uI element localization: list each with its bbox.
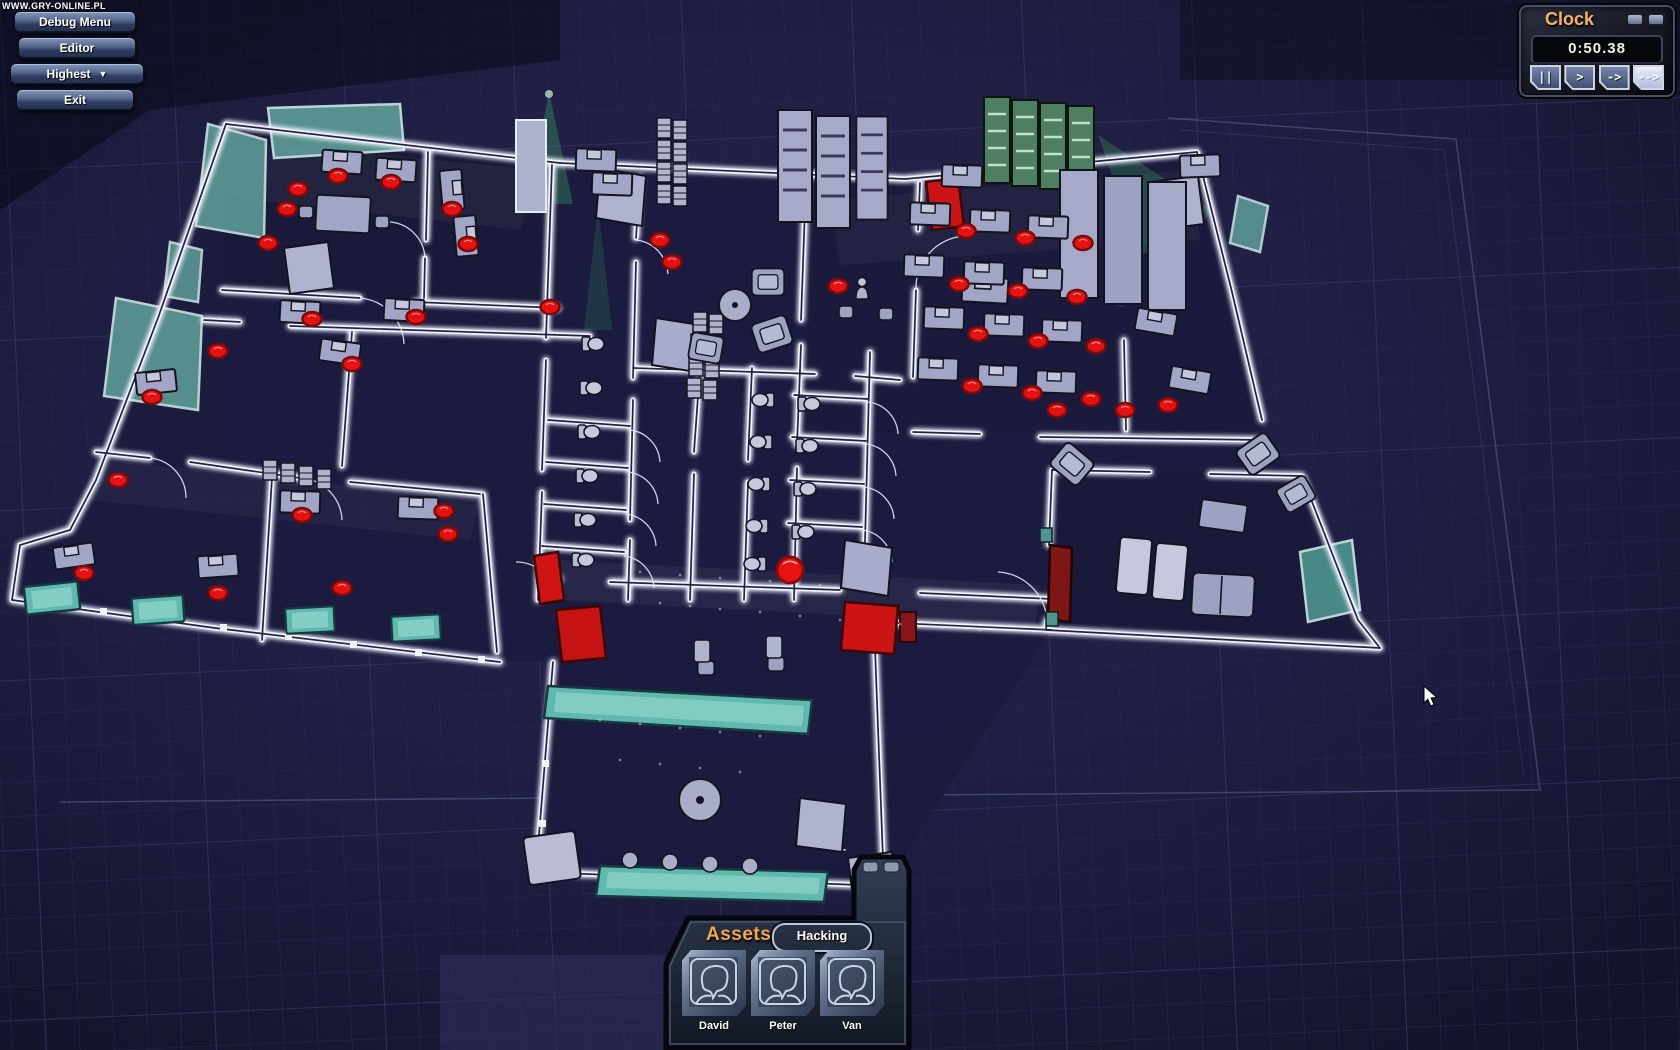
menu-button-label: Editor bbox=[60, 39, 95, 57]
portrait-van[interactable] bbox=[820, 950, 884, 1016]
debug-menu-panel: Debug Menu Editor Highest ▼ Exit bbox=[8, 11, 144, 111]
portrait-david[interactable] bbox=[682, 950, 746, 1016]
character-names: David Peter Van bbox=[682, 1020, 884, 1032]
clock-panel: Clock 0:50.38 || > -> --> bbox=[1519, 5, 1675, 97]
character-portraits bbox=[682, 950, 884, 1016]
tab-hacking[interactable]: Hacking bbox=[772, 923, 872, 952]
assets-title: Assets bbox=[706, 924, 771, 946]
menu-button-label: Highest bbox=[47, 65, 91, 83]
menu-button-label: Debug Menu bbox=[39, 13, 111, 31]
clock-time-display: 0:50.38 bbox=[1531, 35, 1663, 64]
menu-button-exit[interactable]: Exit bbox=[16, 89, 134, 111]
menu-button-debug-menu[interactable]: Debug Menu bbox=[14, 11, 136, 33]
speed-button-fastest[interactable]: --> bbox=[1633, 65, 1664, 90]
clock-title: Clock bbox=[1545, 9, 1594, 30]
clock-speed-controls: || > -> --> bbox=[1530, 65, 1664, 90]
fast-forward-icon: -> bbox=[1601, 67, 1628, 88]
watermark: WWW.GRY-ONLINE.PL bbox=[2, 1, 106, 11]
person-figure bbox=[856, 278, 868, 300]
chevron-down-icon: ▼ bbox=[99, 65, 108, 83]
play-icon: > bbox=[1566, 67, 1593, 88]
person-portrait-icon bbox=[758, 957, 808, 1007]
panel-close-button[interactable] bbox=[884, 862, 899, 872]
panel-minimize-button[interactable] bbox=[863, 862, 878, 872]
speed-button-pause[interactable]: || bbox=[1530, 65, 1561, 90]
fastest-forward-icon: --> bbox=[1635, 67, 1662, 88]
portrait-peter[interactable] bbox=[751, 950, 815, 1016]
alarm-dome bbox=[777, 557, 803, 583]
panel-minimize-button[interactable] bbox=[1627, 14, 1643, 25]
pause-icon: || bbox=[1532, 67, 1559, 88]
assets-panel: Assets Hacking bbox=[658, 852, 912, 1050]
person-portrait-icon bbox=[827, 957, 877, 1007]
character-name: Van bbox=[820, 1020, 884, 1032]
character-name: Peter bbox=[751, 1020, 815, 1032]
clock-window-controls bbox=[1627, 14, 1664, 25]
menu-dropdown-highest[interactable]: Highest ▼ bbox=[10, 63, 144, 85]
menu-button-editor[interactable]: Editor bbox=[18, 37, 136, 59]
person-portrait-icon bbox=[689, 957, 739, 1007]
bright-lot-patch bbox=[440, 955, 665, 1050]
speed-button-fast[interactable]: -> bbox=[1599, 65, 1630, 90]
character-name: David bbox=[682, 1020, 746, 1032]
menu-button-label: Exit bbox=[64, 91, 86, 109]
panel-close-button[interactable] bbox=[1648, 14, 1664, 25]
speed-button-play[interactable]: > bbox=[1564, 65, 1595, 90]
